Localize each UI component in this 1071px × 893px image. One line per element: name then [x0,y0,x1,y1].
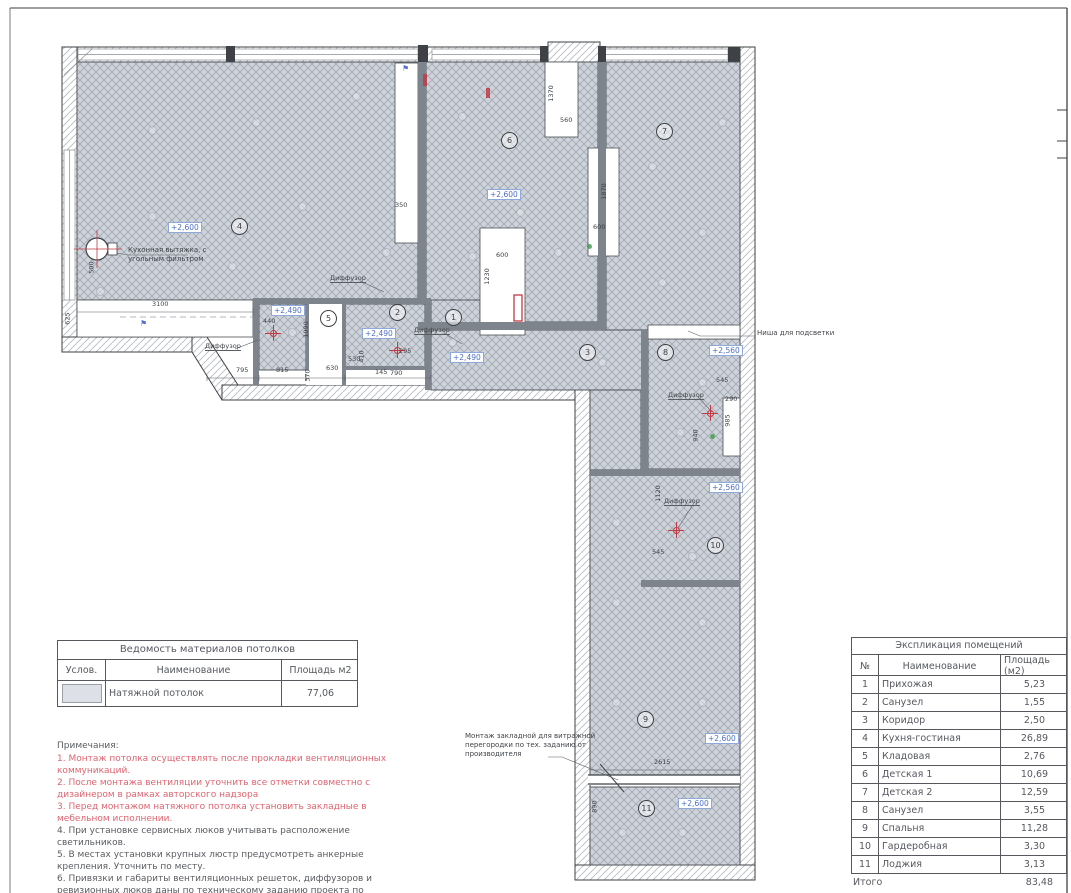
room-area-cell: 5,23 [1001,676,1068,693]
explication-total-row: Итого 83,48 [851,874,1067,888]
plan-annotation: Ниша для подсветки [757,329,834,338]
room-area-cell: 10,69 [1001,766,1068,783]
room-area-cell: 2,50 [1001,712,1068,729]
room-number-cell: 6 [852,766,879,783]
room-area-cell: 3,13 [1001,856,1068,873]
explication-row: 11 Лоджия 3,13 [852,855,1066,873]
room-number-cell: 1 [852,676,879,693]
room-name-cell: Прихожая [879,676,1001,693]
room-number-cell: 4 [852,730,879,747]
material-name: Натяжной потолок [106,681,282,706]
note-item: 2. После монтажа вентиляции уточнить все… [57,778,387,802]
plan-annotation: Кухонная вытяжка, с угольным фильтром [128,246,206,264]
note-item: 5. В местах установки крупных люстр пред… [57,850,387,874]
room-number-cell: 7 [852,784,879,801]
explication-row: 3 Коридор 2,50 [852,711,1066,729]
room-area-cell: 2,76 [1001,748,1068,765]
room-name-cell: Детская 1 [879,766,1001,783]
materials-row: Натяжной потолок 77,06 [58,680,357,706]
explication-col-num: № [852,655,879,677]
room-area-cell: 26,89 [1001,730,1068,747]
note-item: 3. Перед монтажом натяжного потолка уста… [57,802,387,826]
explication-col-area: Площадь (м2) [1001,655,1068,677]
room-name-cell: Лоджия [879,856,1001,873]
material-swatch-cell [58,681,106,706]
room-number-cell: 5 [852,748,879,765]
room-area-cell: 3,55 [1001,802,1068,819]
room-area-cell: 12,59 [1001,784,1068,801]
room-name-cell: Детская 2 [879,784,1001,801]
explication-col-name: Наименование [879,655,1001,677]
materials-col-area: Площадь м2 [282,660,359,680]
ceiling-plan-sheet: ⚑⚑ 3100625500350137056018706006001230795… [0,0,1071,893]
room-area-cell: 3,30 [1001,838,1068,855]
room-name-cell: Санузел [879,802,1001,819]
explication-table-title: Экспликация помещений [852,638,1066,655]
notes-list: 1. Монтаж потолка осуществлять после про… [57,754,387,893]
explication-table: Экспликация помещений № Наименование Пло… [851,637,1067,888]
explication-row: 4 Кухня-гостиная 26,89 [852,729,1066,747]
materials-col-name: Наименование [106,660,282,680]
explication-row: 5 Кладовая 2,76 [852,747,1066,765]
room-name-cell: Спальня [879,820,1001,837]
stretch-ceiling-swatch [62,684,102,703]
room-area-cell: 11,28 [1001,820,1068,837]
explication-row: 7 Детская 2 12,59 [852,783,1066,801]
explication-row: 6 Детская 1 10,69 [852,765,1066,783]
explication-row: 1 Прихожая 5,23 [852,675,1066,693]
room-area-cell: 1,55 [1001,694,1068,711]
room-number-cell: 9 [852,820,879,837]
explication-row: 10 Гардеробная 3,30 [852,837,1066,855]
room-number-cell: 11 [852,856,879,873]
room-number-cell: 10 [852,838,879,855]
explication-row: 9 Спальня 11,28 [852,819,1066,837]
notes-block: Примечания: 1. Монтаж потолка осуществля… [57,741,387,893]
explication-rows: 1 Прихожая 5,23 2 Санузел 1,55 3 Коридор… [852,675,1066,873]
room-name-cell: Кладовая [879,748,1001,765]
materials-table-title: Ведомость материалов потолков [58,641,357,660]
explication-row: 8 Санузел 3,55 [852,801,1066,819]
notes-title: Примечания: [57,741,387,753]
total-value: 83,48 [1026,877,1053,888]
material-area: 77,06 [282,681,359,706]
room-name-cell: Коридор [879,712,1001,729]
total-label: Итого [853,877,882,888]
materials-table: Ведомость материалов потолков Услов. Наи… [57,640,358,707]
room-number-cell: 8 [852,802,879,819]
plan-annotation: Монтаж закладной для витражной перегород… [465,732,595,760]
room-number-cell: 2 [852,694,879,711]
room-number-cell: 3 [852,712,879,729]
note-item: 4. При установке сервисных люков учитыва… [57,826,387,850]
materials-col-symbol: Услов. [58,660,106,680]
explication-row: 2 Санузел 1,55 [852,693,1066,711]
note-item: 6. Привязки и габариты вентиляционных ре… [57,874,387,893]
room-name-cell: Санузел [879,694,1001,711]
room-name-cell: Кухня-гостиная [879,730,1001,747]
note-item: 1. Монтаж потолка осуществлять после про… [57,754,387,778]
room-name-cell: Гардеробная [879,838,1001,855]
